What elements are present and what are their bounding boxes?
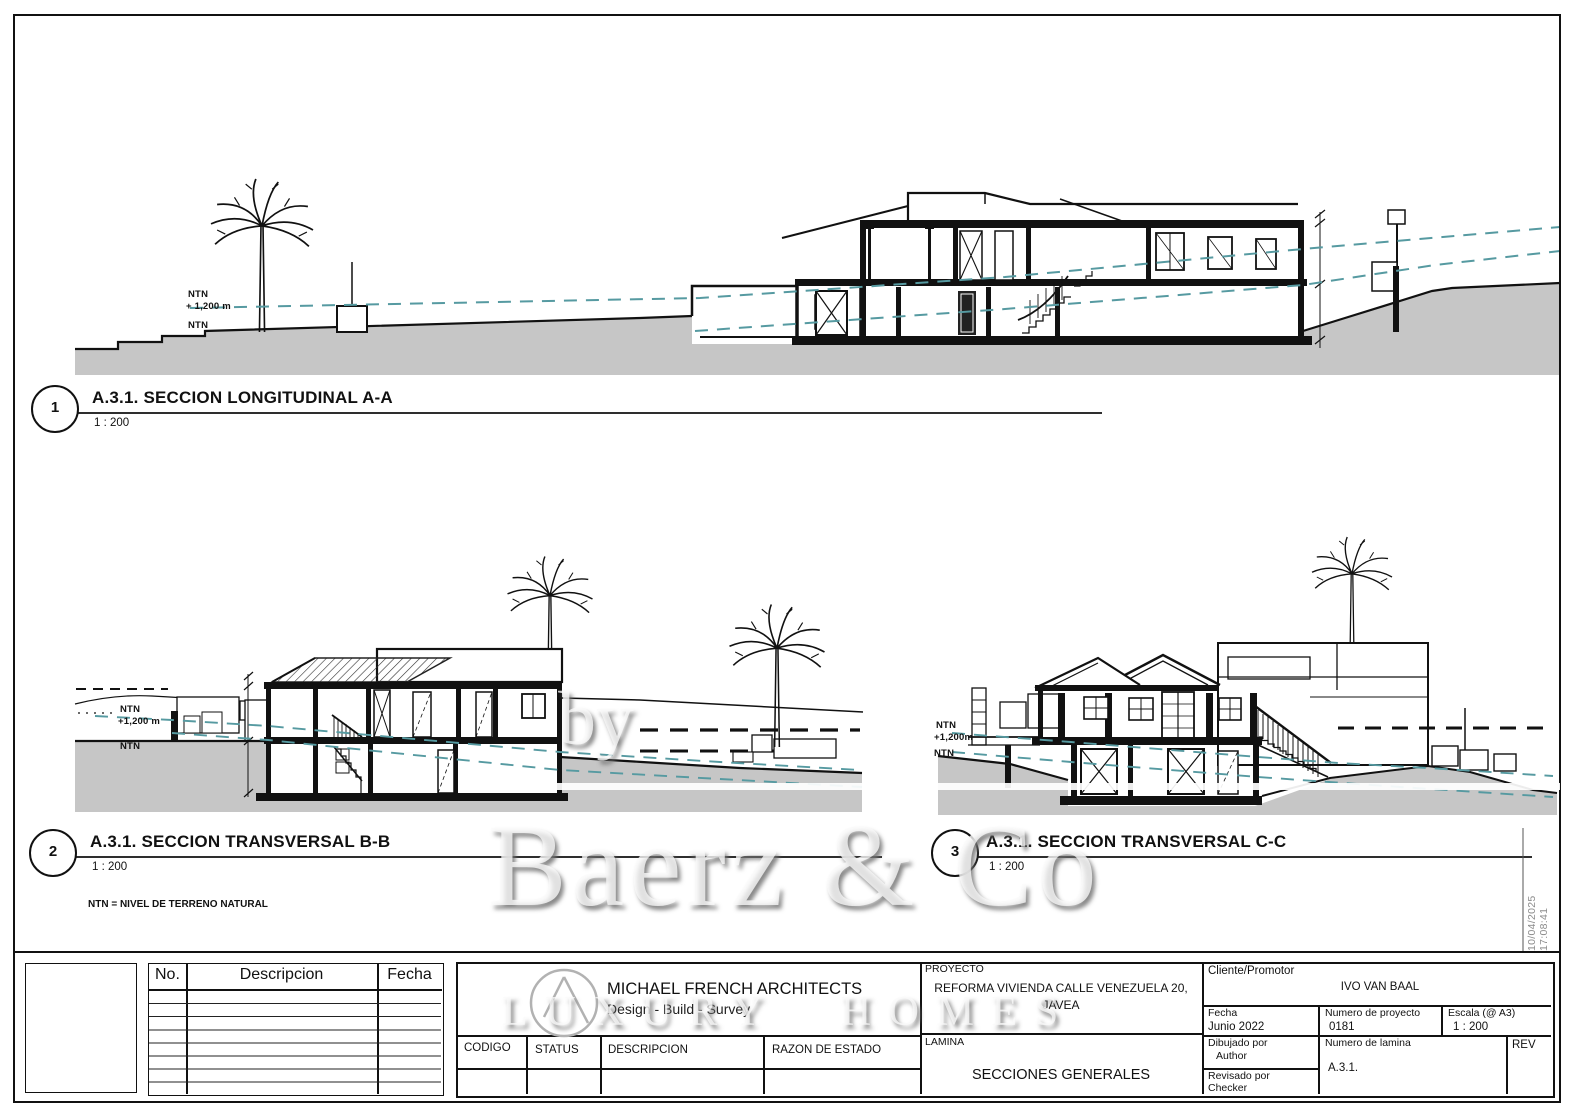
titleblock-top-line	[13, 951, 1561, 953]
descripcion-label: DESCRIPCION	[608, 1044, 688, 1056]
revision-col-fecha: Fecha	[377, 967, 442, 984]
divider-line	[600, 1035, 602, 1094]
cliente-label: Cliente/Promotor	[1208, 965, 1294, 977]
divider-line	[1506, 1035, 1508, 1094]
fecha-label: Fecha	[1208, 1008, 1237, 1019]
revisado-label: Revisado por	[1208, 1071, 1270, 1082]
revisado-value: Checker	[1208, 1083, 1247, 1094]
numero-lamina-value: A.3.1.	[1328, 1062, 1358, 1074]
divider-line	[1318, 1005, 1320, 1094]
rev-label: REV	[1512, 1039, 1536, 1051]
escala-value: 1 : 200	[1453, 1021, 1488, 1033]
revision-table-rows	[149, 991, 441, 1093]
firm-tagline: Design - Build - Survey	[607, 1002, 750, 1017]
print-timestamp: 10/04/2025 17:08:41	[1526, 895, 1550, 951]
drawing-sheet: 1 A.3.1. SECCION LONGITUDINAL A-A 1 : 20…	[0, 0, 1576, 1118]
proyecto-label: PROYECTO	[925, 964, 984, 975]
razon-label: RAZON DE ESTADO	[772, 1044, 881, 1056]
numero-proyecto-value: 0181	[1329, 1021, 1355, 1033]
lamina-value: SECCIONES GENERALES	[922, 1068, 1200, 1083]
cliente-value: IVO VAN BAAL	[1300, 981, 1460, 993]
divider-line	[526, 1035, 528, 1094]
proyecto-line2: JAVEA	[922, 999, 1200, 1012]
codigo-label: CODIGO	[464, 1042, 511, 1054]
divider-line	[763, 1035, 765, 1094]
architect-logo-icon	[527, 967, 601, 1039]
sheet-border	[13, 14, 1561, 1103]
numero-lamina-label: Numero de lamina	[1325, 1038, 1411, 1049]
titleblock-empty-box	[25, 963, 137, 1093]
firm-name: MICHAEL FRENCH ARCHITECTS	[607, 981, 862, 998]
numero-proyecto-label: Numero de proyecto	[1325, 1008, 1420, 1019]
divider-line	[920, 1033, 1203, 1035]
dibujado-label: Dibujado por	[1208, 1038, 1268, 1049]
divider-line	[1202, 962, 1204, 1094]
dibujado-value: Author	[1216, 1051, 1247, 1062]
divider-line	[1441, 1005, 1443, 1035]
proyecto-line1: REFORMA VIVIENDA CALLE VENEZUELA 20,	[922, 982, 1200, 995]
revision-col-descripcion: Descripcion	[186, 967, 377, 984]
revision-col-no: No.	[155, 967, 180, 984]
status-label: STATUS	[535, 1044, 579, 1056]
fecha-value: Junio 2022	[1208, 1021, 1264, 1033]
escala-label: Escala (@ A3)	[1448, 1008, 1515, 1019]
lamina-label: LAMINA	[925, 1037, 964, 1048]
